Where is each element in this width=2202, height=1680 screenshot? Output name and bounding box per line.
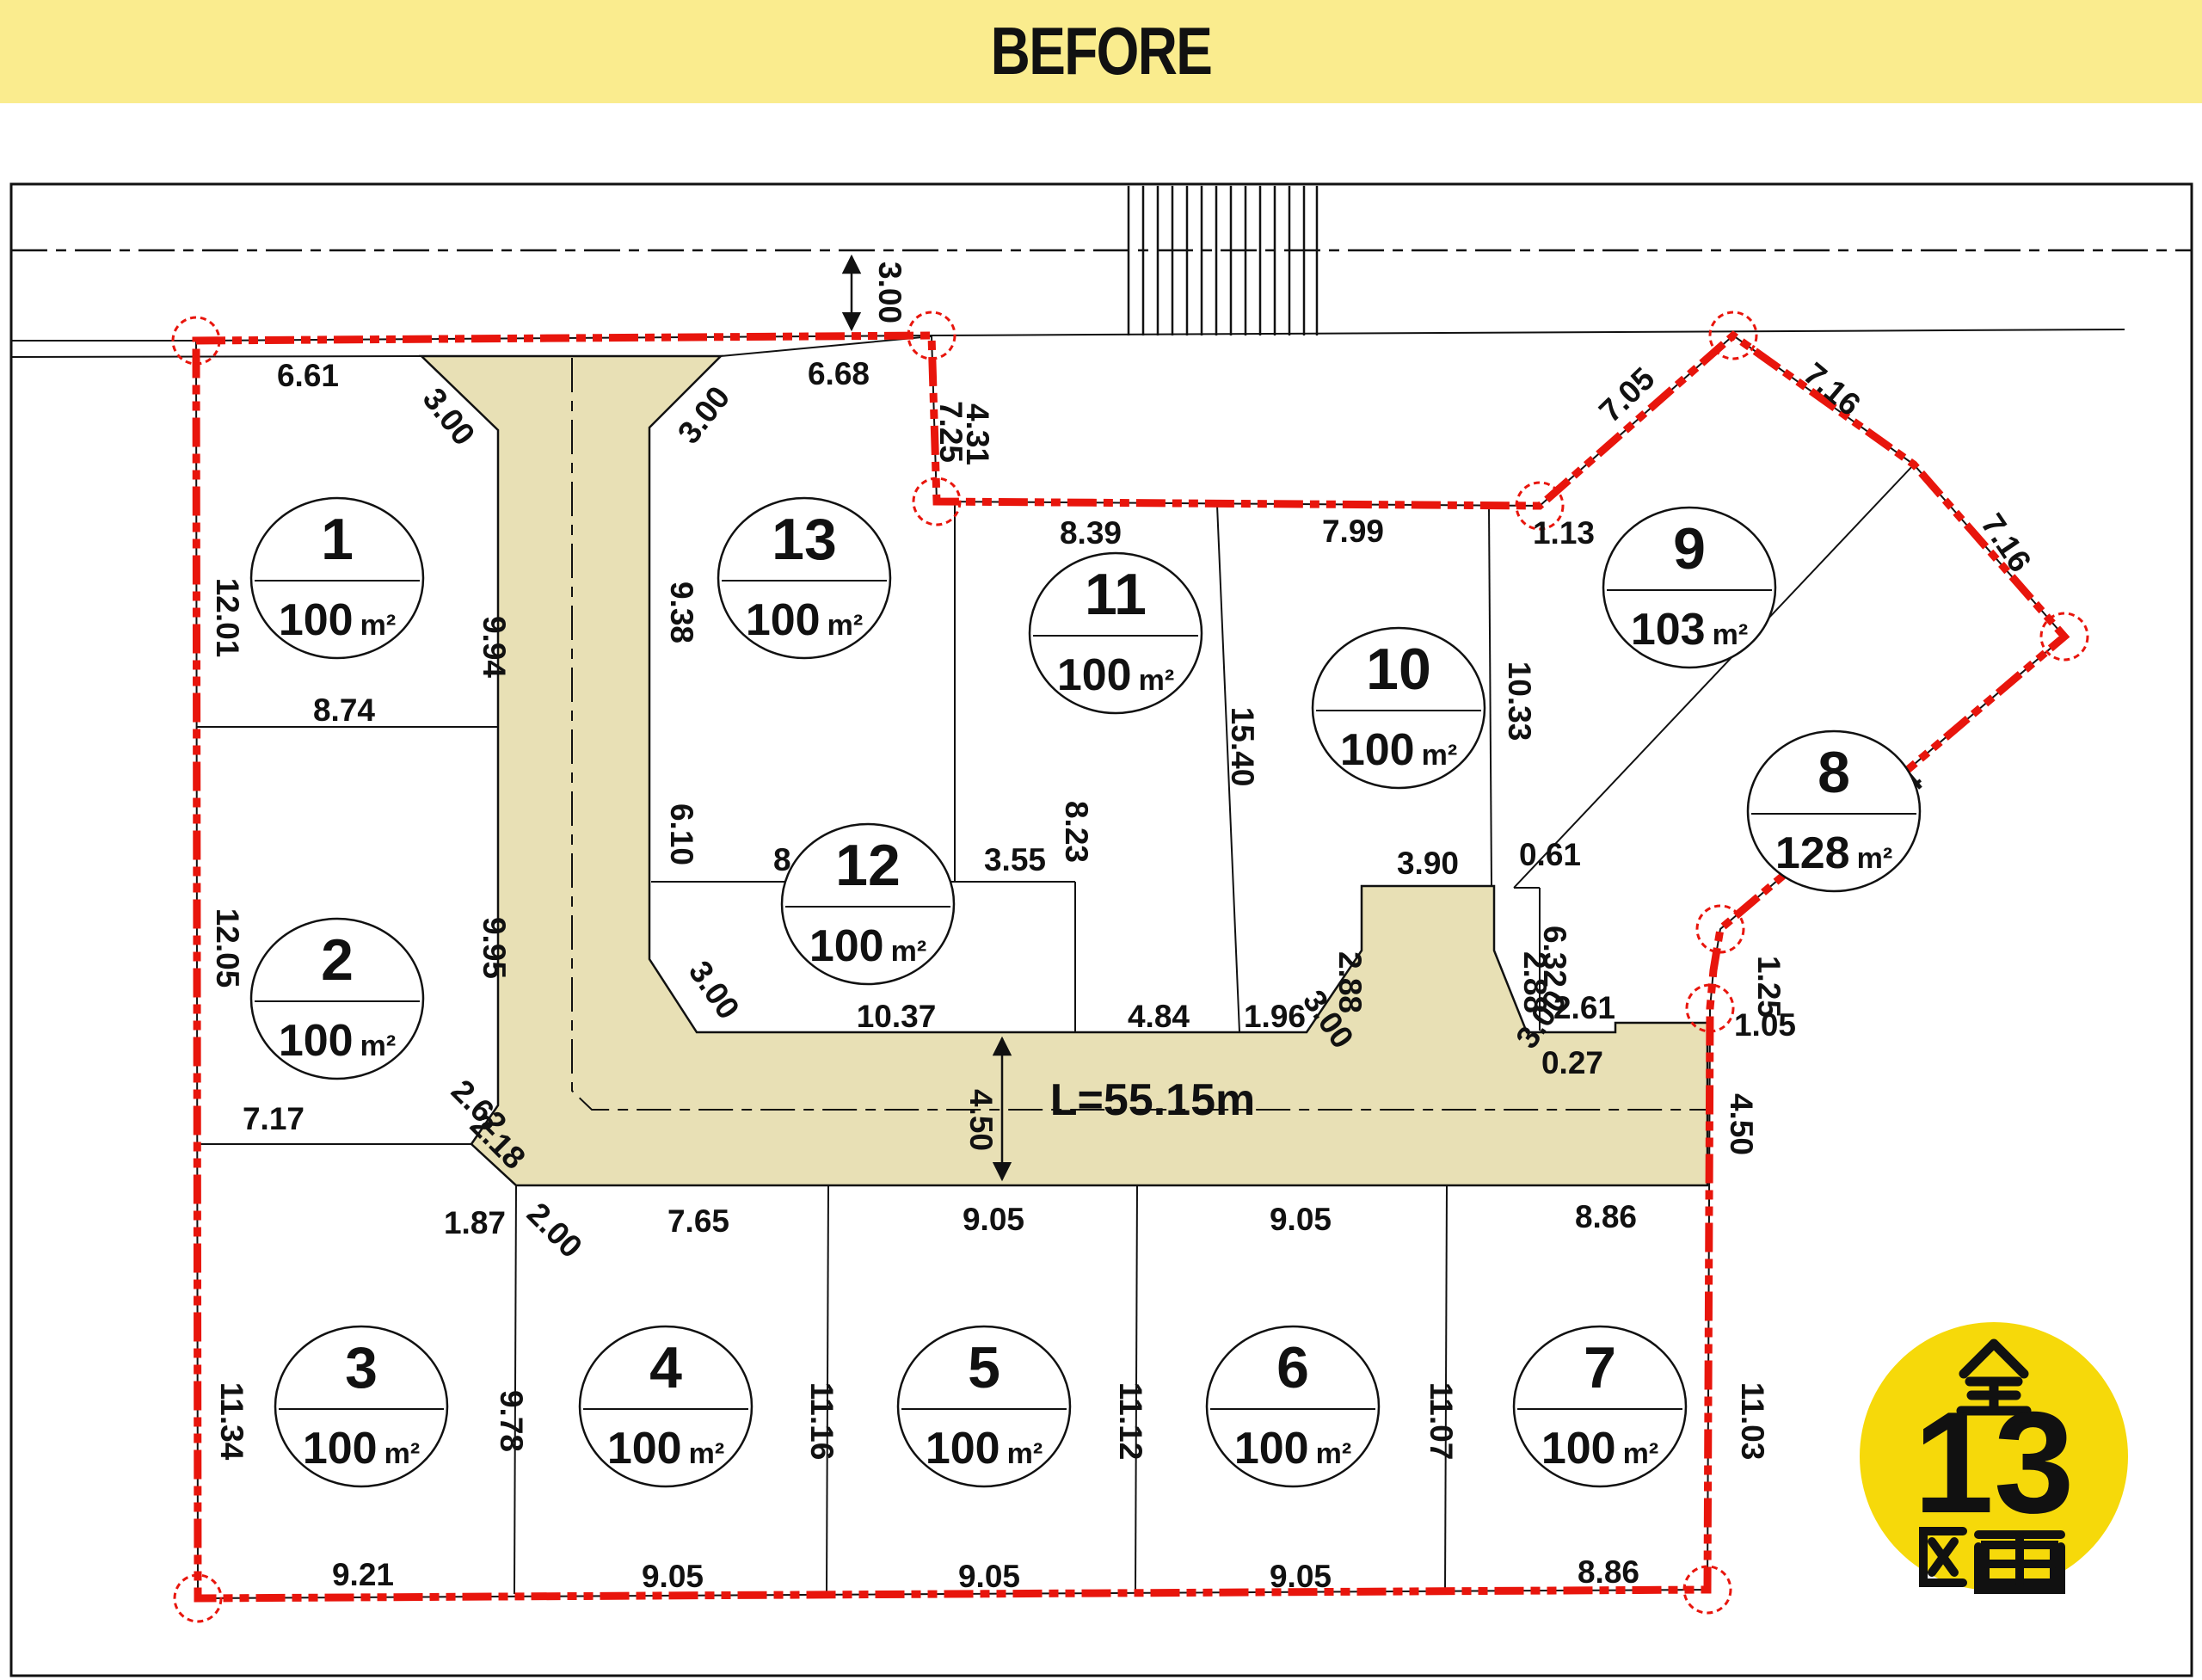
dimension-label: 12.05	[210, 908, 245, 988]
dimension-label: 8.39	[1060, 515, 1122, 551]
dimension-label: 10.33	[1502, 662, 1537, 742]
plot-number: 2	[321, 927, 354, 993]
dimension-label: 7.99	[1322, 514, 1384, 549]
dimension-label: 11.16	[804, 1382, 840, 1461]
plot-number: 10	[1366, 637, 1431, 702]
dimension-label: 6.32	[1537, 926, 1572, 988]
banner: BEFORE	[0, 0, 2202, 103]
dimension-label: 6.61	[277, 358, 339, 393]
plot-number: 4	[649, 1335, 682, 1400]
dimension-label: 9.38	[664, 582, 699, 643]
dimension-label: 9.05	[963, 1202, 1024, 1237]
dimension-label: 15.40	[1225, 707, 1260, 787]
dimension-label: 1.87	[444, 1205, 506, 1240]
total-plots-badge: 13 全 区画	[1860, 1322, 2128, 1591]
plot-marker-3: 3100m²	[275, 1326, 447, 1486]
dimension-label: 1.13	[1533, 515, 1595, 551]
dimension-label: 12.01	[210, 578, 245, 658]
dimension-label: 9.05	[642, 1559, 704, 1594]
dimension-label: 7.25	[933, 401, 969, 463]
dimension-label: 11.07	[1424, 1382, 1459, 1461]
dimension-label: 0.61	[1519, 837, 1581, 872]
dimension-label: 3.55	[984, 842, 1046, 877]
dimension-label: 4.50	[963, 1089, 999, 1151]
dimension-label: 11.03	[1735, 1382, 1770, 1461]
dimension-label: 8.74	[313, 692, 375, 728]
plot-marker-6: 6100m²	[1207, 1326, 1379, 1486]
plot-number: 13	[772, 507, 837, 572]
dimension-label: 9.21	[332, 1557, 394, 1592]
plot-marker-4: 4100m²	[580, 1326, 752, 1486]
dimension-label: 9.05	[958, 1559, 1020, 1594]
dimension-label: 1.05	[1734, 1007, 1796, 1043]
plot-marker-11: 11100m²	[1030, 553, 1202, 713]
plot-number: 11	[1085, 562, 1147, 627]
plot-marker-12: 12100m²	[782, 824, 954, 984]
dimension-label: 3.00	[872, 262, 907, 323]
dimension-label: 9.05	[1270, 1202, 1332, 1237]
plot-number: 1	[321, 507, 354, 572]
dimension-label: 4.84	[1128, 999, 1190, 1034]
plot-number: 9	[1673, 516, 1706, 582]
dimension-label: 9.78	[494, 1390, 529, 1452]
plot-number: 7	[1584, 1335, 1616, 1400]
dimension-label: 8.86	[1578, 1554, 1639, 1590]
dimension-label: 7.65	[667, 1203, 729, 1239]
plot-number: 5	[968, 1335, 1000, 1400]
plot-marker-5: 5100m²	[898, 1326, 1070, 1486]
plot-number: 6	[1276, 1335, 1309, 1400]
plot-marker-8: 8128m²	[1748, 731, 1920, 891]
banner-title: BEFORE	[991, 14, 1212, 89]
dimension-label: 9.95	[477, 917, 512, 979]
dimension-label: 9.05	[1270, 1559, 1332, 1594]
badge-line3-text: 区画	[1925, 1514, 2063, 1591]
dimension-label: 11.34	[214, 1382, 249, 1461]
dimension-label: 1.96	[1244, 999, 1306, 1034]
plot-marker-13: 13100m²	[718, 498, 890, 658]
plot-number: 12	[835, 833, 901, 898]
dimension-label: 3.90	[1397, 846, 1459, 881]
land-subdivision-plan: BEFORE	[0, 0, 2202, 1680]
plot-marker-10: 10100m²	[1313, 628, 1485, 788]
dimension-label: 11.12	[1113, 1382, 1148, 1461]
dimension-label: 6.68	[808, 356, 870, 391]
plot-number: 3	[345, 1335, 378, 1400]
plot-marker-7: 7100m²	[1514, 1326, 1686, 1486]
dimension-label: 6.10	[664, 803, 699, 865]
dimension-label: 8.23	[1059, 801, 1094, 863]
dimension-label: 2.61	[1553, 990, 1615, 1025]
badge-line1-text: 全	[1959, 1340, 2028, 1417]
road-edge-line	[11, 356, 421, 357]
dimension-label: 7.17	[243, 1101, 304, 1136]
dimension-label: 4.50	[1724, 1093, 1759, 1155]
dimension-label: 8.86	[1575, 1199, 1637, 1234]
plot-marker-9: 9103m²	[1603, 508, 1775, 668]
plot-marker-1: 1100m²	[251, 498, 423, 658]
dimension-label: L=55.15m	[1050, 1075, 1256, 1125]
dimension-label: 0.27	[1541, 1045, 1603, 1080]
dimension-label: 10.37	[857, 999, 937, 1034]
site-plan-drawing: BEFORE	[0, 0, 2202, 1680]
plot-number: 8	[1818, 740, 1850, 805]
dimension-label: 9.94	[477, 616, 512, 678]
plot-marker-2: 2100m²	[251, 919, 423, 1079]
